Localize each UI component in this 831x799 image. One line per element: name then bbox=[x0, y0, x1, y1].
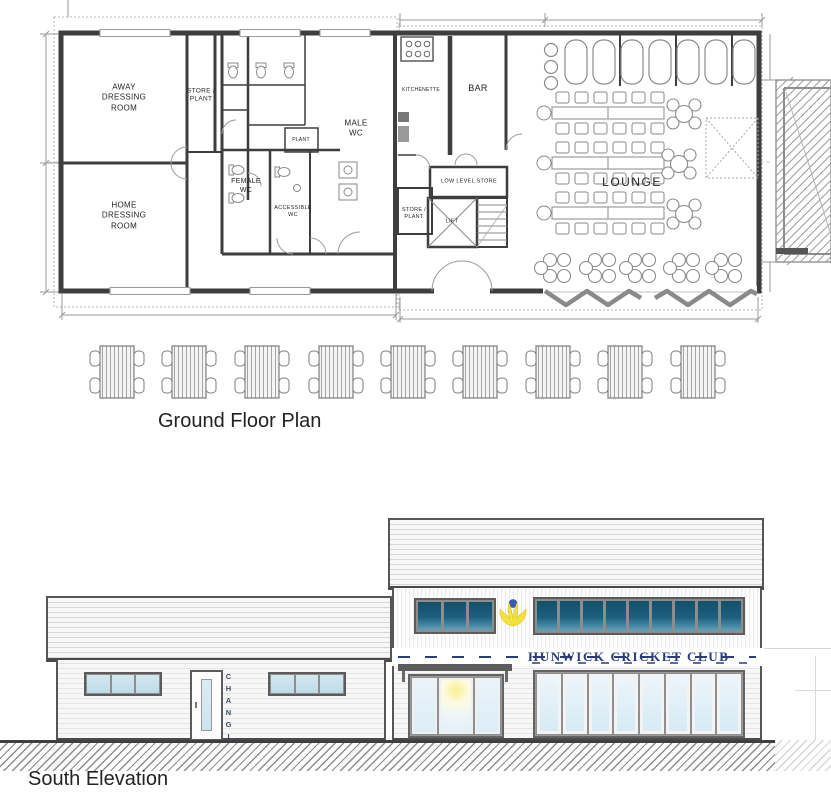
window-pane bbox=[698, 601, 718, 631]
room-label-store-plant-1: STORE / PLANT bbox=[187, 88, 215, 105]
window-pane bbox=[675, 601, 695, 631]
entrance-doors bbox=[408, 674, 504, 738]
window-pane bbox=[444, 602, 467, 630]
window-pane bbox=[560, 601, 580, 631]
picnic-tables bbox=[90, 346, 725, 398]
room-label-kitchenette: KITCHENETTE bbox=[402, 87, 440, 94]
changing-door-label: CHANGING bbox=[224, 672, 233, 738]
entrance-sidelite bbox=[412, 678, 437, 734]
door-panel bbox=[537, 674, 561, 734]
room-label-store-plant-2: STORE / PLANT bbox=[402, 207, 426, 221]
window-pane bbox=[136, 675, 159, 693]
room-label-plant: PLANT bbox=[292, 137, 310, 144]
window-pane bbox=[606, 601, 626, 631]
sign-dashes bbox=[398, 656, 756, 658]
changing-window-2 bbox=[268, 672, 346, 696]
room-label-home-dressing: HOME DRESSING ROOM bbox=[102, 200, 146, 231]
plan-caption: Ground Floor Plan bbox=[158, 410, 321, 433]
door-panel bbox=[666, 674, 690, 734]
upper-window-right bbox=[533, 597, 745, 635]
canopy-bracket bbox=[505, 671, 508, 682]
window-pane bbox=[320, 675, 343, 693]
background-line bbox=[795, 690, 831, 691]
room-label-male-wc: MALE WC bbox=[345, 119, 368, 140]
door-glass-strip bbox=[201, 679, 212, 731]
sign-dashes-under bbox=[532, 662, 750, 664]
door-panel bbox=[640, 674, 664, 734]
window-pane bbox=[271, 675, 294, 693]
door-panel bbox=[614, 674, 638, 734]
window-pane bbox=[652, 601, 672, 631]
room-label-bar: BAR bbox=[468, 83, 487, 95]
changing-door bbox=[190, 670, 223, 741]
door-panel bbox=[717, 674, 741, 734]
window-pane bbox=[537, 601, 557, 631]
window-pane bbox=[112, 675, 135, 693]
room-label-away-dressing: AWAY DRESSING ROOM bbox=[102, 82, 146, 113]
room-label-low-level-store: LOW LEVEL STORE bbox=[441, 178, 497, 185]
south-elevation: CHANGING HUNWICK CRICKET CLUB bbox=[0, 460, 831, 799]
upper-window-left bbox=[414, 598, 496, 634]
window-pane bbox=[629, 601, 649, 631]
room-label-lift: LIFT bbox=[446, 218, 459, 225]
entrance-door-leaf bbox=[439, 678, 473, 734]
club-crest-icon bbox=[496, 597, 530, 629]
ground-floor-plan: AWAY DRESSING ROOM STORE / PLANT HOME DR… bbox=[0, 0, 831, 460]
window-pane bbox=[87, 675, 110, 693]
door-panel bbox=[589, 674, 613, 734]
room-label-accessible-wc: ACCESSIBLE WC bbox=[274, 205, 312, 219]
background-line bbox=[764, 648, 831, 649]
bifold-doors bbox=[543, 286, 757, 305]
window-pane bbox=[469, 602, 492, 630]
window-pane bbox=[418, 602, 441, 630]
door-panel bbox=[692, 674, 716, 734]
entrance-sidelite bbox=[475, 678, 500, 734]
window-pane bbox=[721, 601, 741, 631]
drawing-sheet: AWAY DRESSING ROOM STORE / PLANT HOME DR… bbox=[0, 0, 831, 799]
ground-hatch bbox=[0, 740, 775, 771]
window-pane bbox=[296, 675, 319, 693]
canopy-bracket bbox=[402, 671, 405, 682]
door-handle bbox=[195, 702, 197, 708]
clubhouse-roof bbox=[388, 518, 764, 590]
door-panel bbox=[563, 674, 587, 734]
changing-window-1 bbox=[84, 672, 162, 696]
glazed-folding-doors bbox=[533, 670, 745, 738]
elevation-caption: South Elevation bbox=[28, 768, 168, 791]
changing-wing-roof bbox=[46, 596, 392, 662]
terrace bbox=[776, 80, 831, 262]
entrance-canopy bbox=[398, 664, 512, 671]
window-pane bbox=[583, 601, 603, 631]
room-label-lounge: LOUNGE bbox=[602, 175, 662, 191]
ground-hatch-light bbox=[775, 740, 831, 771]
background-line bbox=[815, 656, 816, 740]
room-label-female-wc: FEMALE WC bbox=[231, 177, 261, 195]
